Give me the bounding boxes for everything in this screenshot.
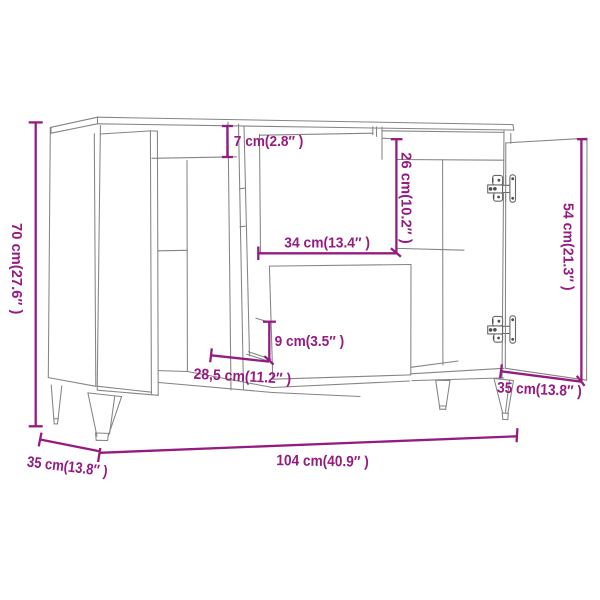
svg-text:9 cm(3.5″ ): 9 cm(3.5″ ) — [275, 334, 345, 351]
svg-text:54 cm(21.3″ ): 54 cm(21.3″ ) — [559, 203, 576, 291]
svg-text:26 cm(10.2″ ): 26 cm(10.2″ ) — [397, 152, 414, 243]
svg-text:104 cm(40.9″ ): 104 cm(40.9″ ) — [276, 452, 369, 470]
svg-text:70 cm(27.6″ ): 70 cm(27.6″ ) — [8, 223, 25, 314]
svg-text:7 cm(2.8″ ): 7 cm(2.8″ ) — [234, 134, 304, 151]
svg-text:34 cm(13.4″ ): 34 cm(13.4″ ) — [284, 235, 370, 252]
